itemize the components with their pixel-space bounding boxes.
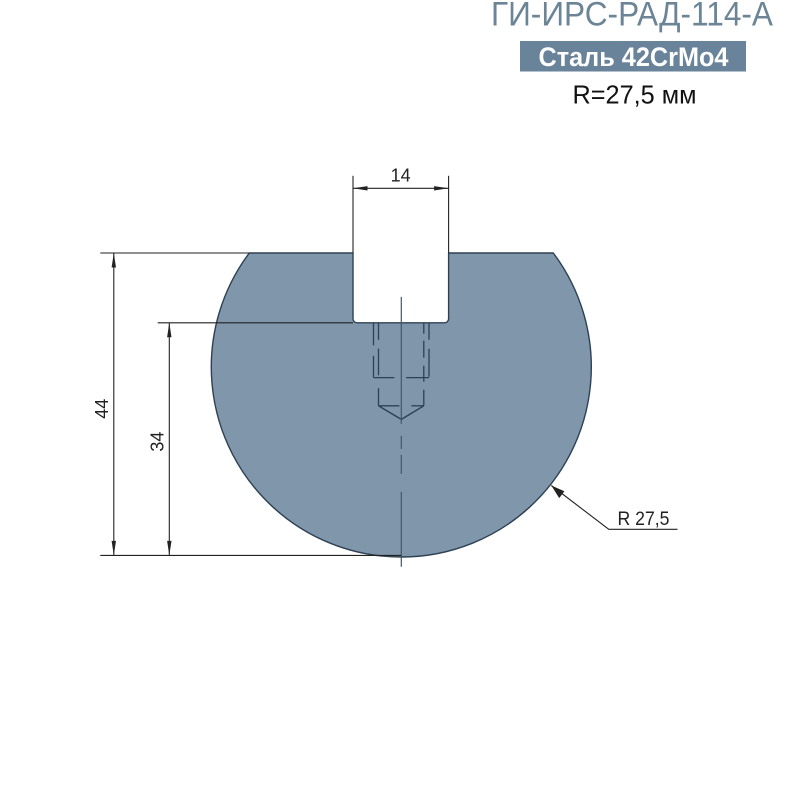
svg-text:34: 34 [147, 432, 167, 452]
svg-text:R=27,5 мм: R=27,5 мм [573, 80, 697, 110]
svg-text:14: 14 [391, 165, 411, 185]
svg-text:R 27,5: R 27,5 [618, 508, 670, 530]
svg-text:ГИ-ИРС-РАД-114-А: ГИ-ИРС-РАД-114-А [491, 0, 773, 34]
svg-text:44: 44 [92, 399, 112, 419]
svg-text:Сталь 42CrMo4: Сталь 42CrMo4 [539, 42, 729, 72]
